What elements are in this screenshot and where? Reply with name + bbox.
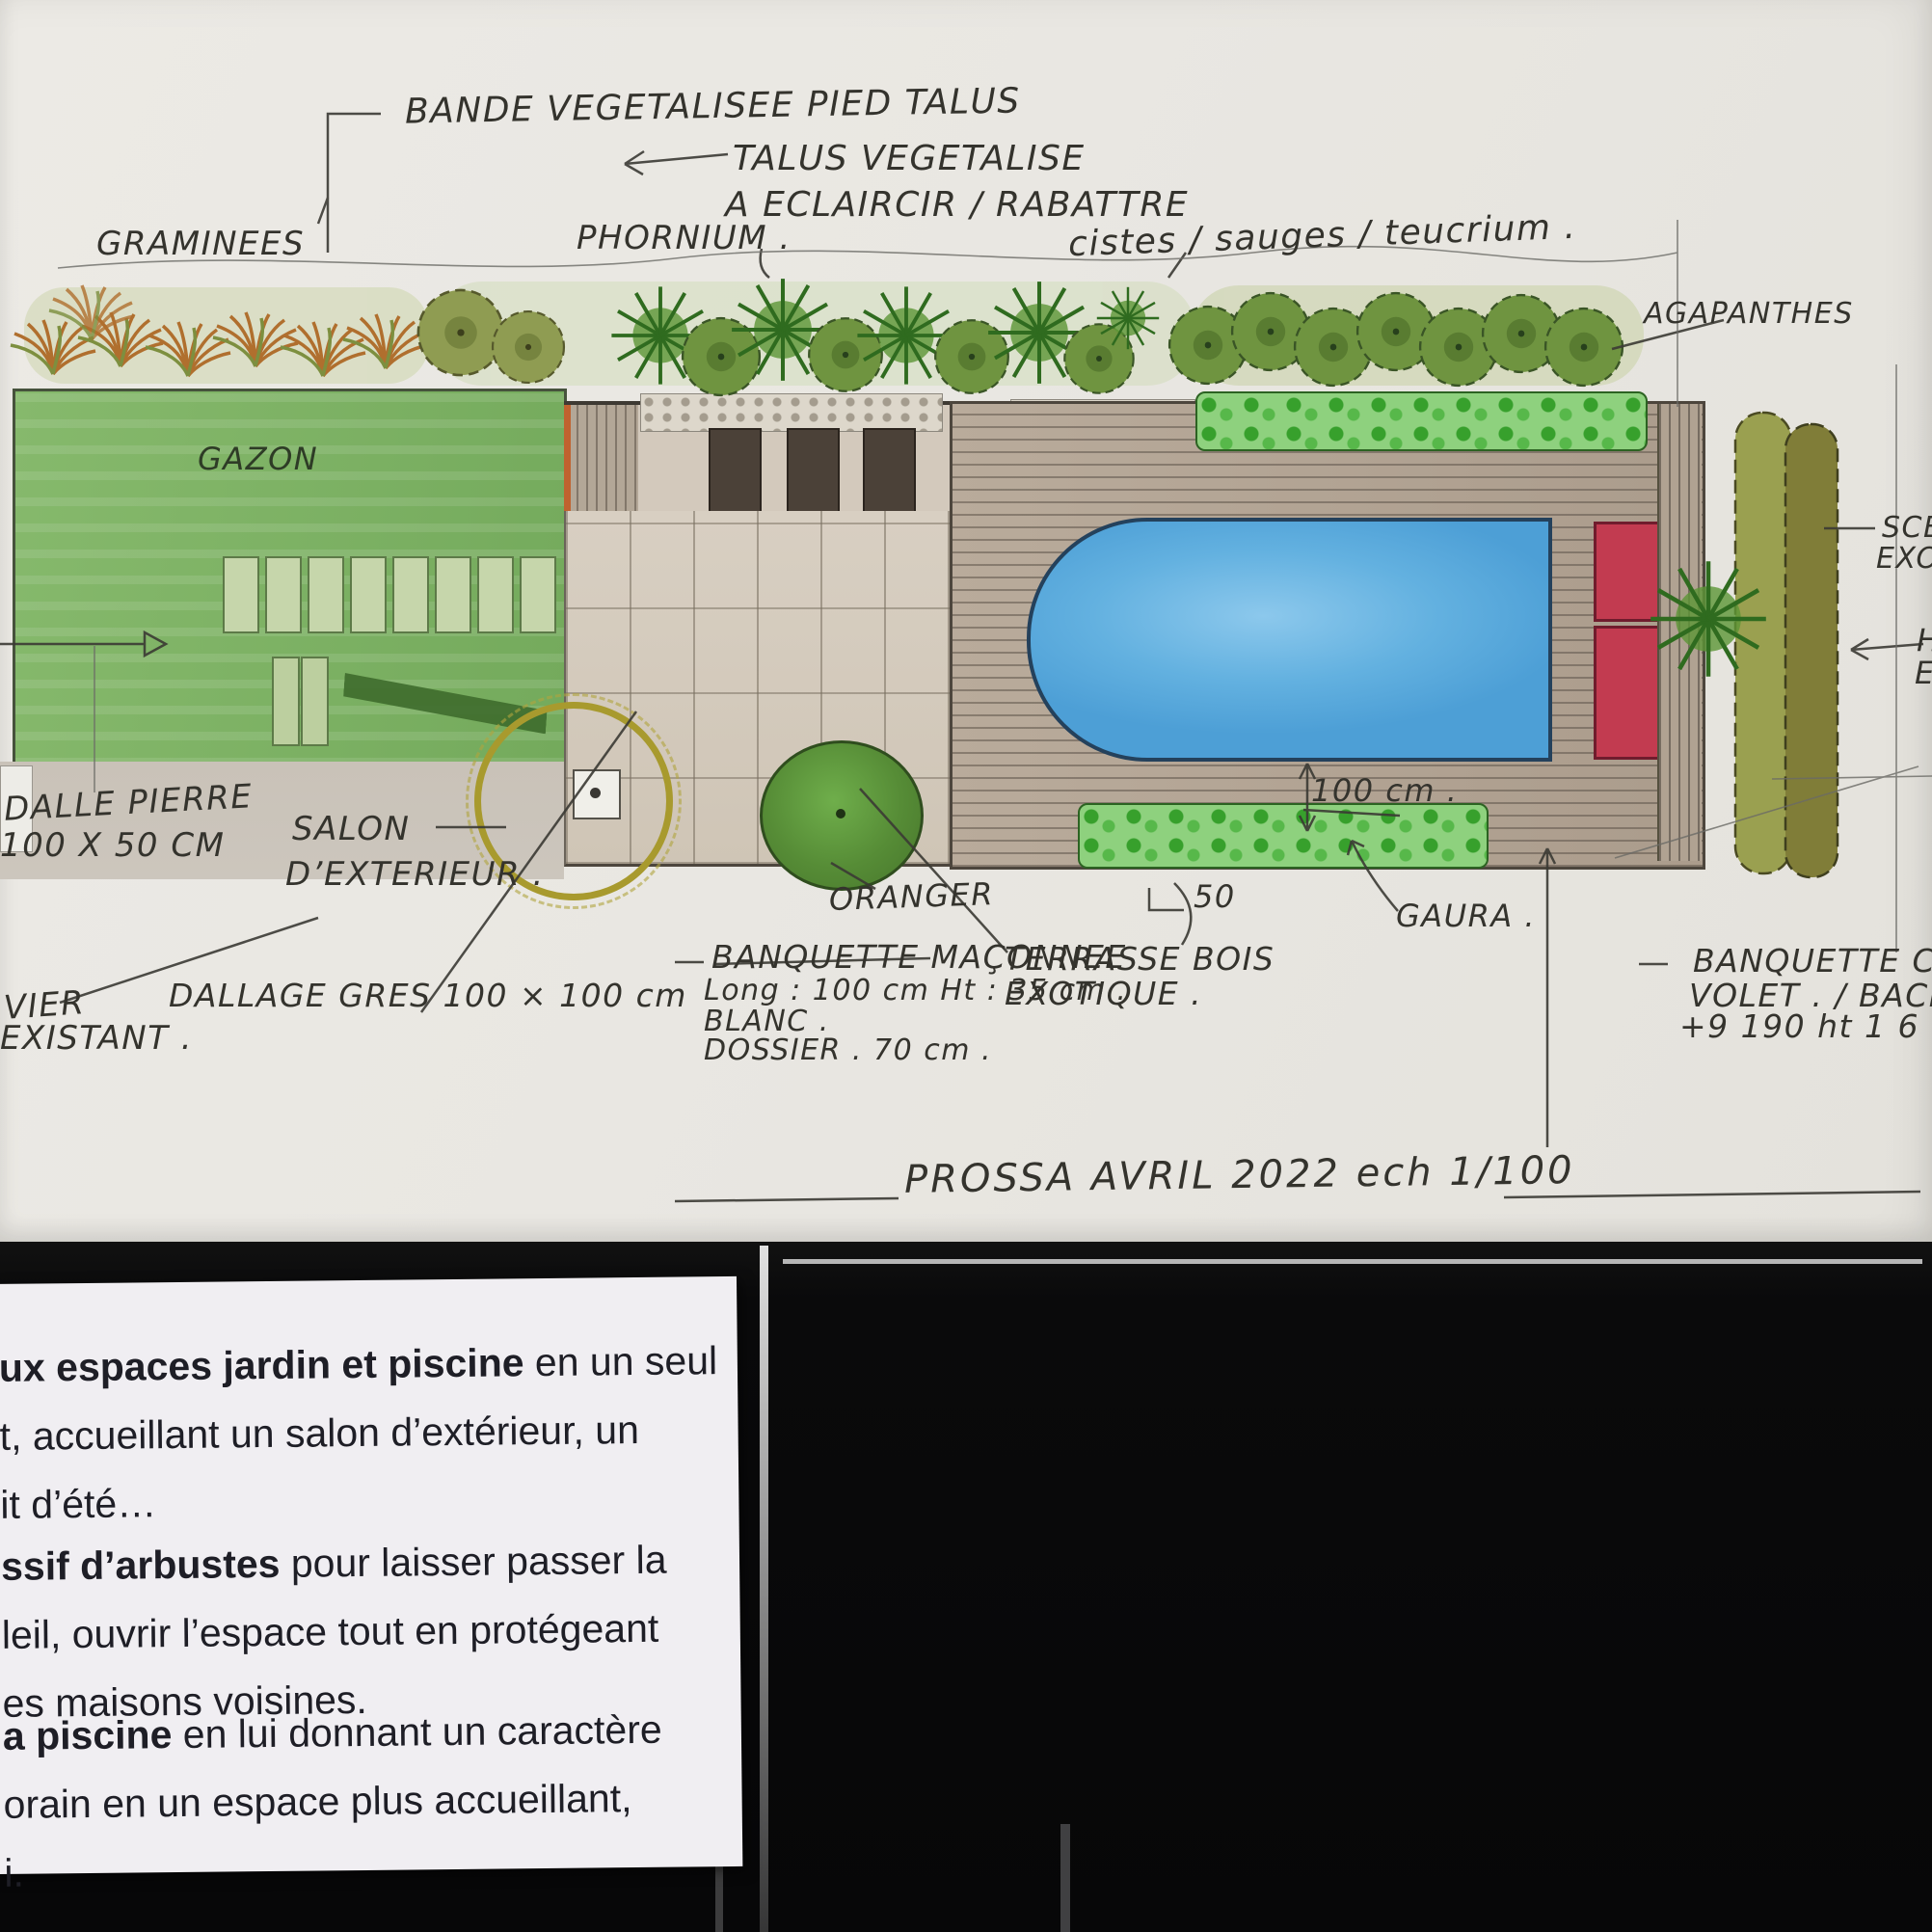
caption-line: orain en un espace plus accueillant, xyxy=(3,1763,737,1839)
deck-edge-boards xyxy=(1657,404,1702,861)
lawn-slab xyxy=(392,556,429,633)
gaura-hedge xyxy=(1078,803,1489,869)
lawn-slab xyxy=(350,556,387,633)
deck-top-shrubs xyxy=(1195,391,1648,451)
lawn-slab xyxy=(520,556,556,633)
label-dimension-100cm: 100 cm . xyxy=(1311,775,1458,808)
red-deck-element xyxy=(1594,626,1663,760)
label-banquette-coffre: BANQUETTE COF xyxy=(1693,945,1932,979)
label-scene: SCEN xyxy=(1882,513,1932,544)
plan-title: PROSSA AVRIL 2022 ech 1/100 xyxy=(904,1150,1575,1200)
label-olivier-existant: EXISTANT . xyxy=(0,1022,193,1057)
caption-line: ux espaces jardin et piscine en un seul xyxy=(0,1327,732,1403)
table-edge-highlight xyxy=(783,1259,1922,1264)
lawn-slab xyxy=(477,556,514,633)
lawn-slab xyxy=(272,657,300,746)
lawn-slab xyxy=(223,556,259,633)
caption-line: leil, ouvrir l’espace tout en protégeant xyxy=(1,1594,735,1670)
garden-plan-photo: BANDE VEGETALISEE PIED TALUS TALUS VEGET… xyxy=(0,0,1932,1932)
orange-tree xyxy=(760,740,924,891)
red-deck-element xyxy=(1594,522,1663,622)
outdoor-table xyxy=(573,769,621,819)
label-banquette-blanc: BLANC . xyxy=(704,1006,830,1037)
label-terrasse-exotique: EXOTIQUE . xyxy=(1005,978,1202,1011)
faint-vertical-line xyxy=(1060,1824,1070,1932)
label-salon-exterieur: D’EXTERIEUR . xyxy=(285,858,545,893)
lounger xyxy=(787,428,840,513)
caption-line: i. xyxy=(4,1832,738,1908)
label-salon: SALON xyxy=(292,813,410,847)
lawn-slab xyxy=(301,657,329,746)
orange-edge-strip xyxy=(564,405,571,511)
label-oranger: ORANGER xyxy=(828,878,994,917)
label-talus-vegetalise: TALUS VEGETALISE xyxy=(733,141,1086,177)
lounger xyxy=(863,428,916,513)
lounger xyxy=(709,428,762,513)
caption-paragraph-jardin-piscine: ux espaces jardin et piscine en un seult… xyxy=(0,1327,734,1540)
label-phormium: PHORNIUM . xyxy=(577,222,792,256)
label-dalle-pierre-dim: 100 X 50 CM xyxy=(0,829,225,864)
label-gazon: GAZON xyxy=(198,443,318,476)
vertical-edge-highlight xyxy=(760,1246,768,1932)
lawn-slab xyxy=(435,556,471,633)
swimming-pool xyxy=(1027,518,1552,762)
label-dimension-50: 50 xyxy=(1194,881,1236,914)
label-scene-exotique: EXO xyxy=(1876,544,1932,575)
wood-boards-strip xyxy=(567,405,638,511)
label-haie-1: H xyxy=(1917,625,1932,657)
pebble-strip xyxy=(640,393,943,432)
caption-line: ssif d’arbustes pour laisser passer la xyxy=(1,1525,735,1601)
label-dallage-gres: DALLAGE GRES 100 × 100 cm xyxy=(169,979,687,1013)
caption-card: ux espaces jardin et piscine en un seult… xyxy=(0,1276,742,1874)
label-banquette-hauteur: +9 190 ht 1 6 xyxy=(1679,1010,1919,1044)
label-talus-eclaircir: A ECLAIRCIR / RABATTRE xyxy=(725,187,1189,224)
label-haie-2: E xyxy=(1915,657,1932,690)
caption-line: t, accueillant un salon d’extérieur, un xyxy=(0,1395,733,1471)
lawn-slab xyxy=(308,556,344,633)
lawn-slab xyxy=(265,556,302,633)
caption-paragraph-piscine: a piscine en lui donnant un caractèreora… xyxy=(3,1695,738,1908)
label-banquette-dossier: DOSSIER . 70 cm . xyxy=(704,1035,992,1066)
label-gaura: GAURA . xyxy=(1396,900,1536,933)
label-agapanthes: AGAPANTHES xyxy=(1644,299,1854,330)
label-graminees: GRAMINEES xyxy=(96,228,305,262)
label-terrasse-bois: TERRASSE BOIS xyxy=(1005,943,1275,977)
caption-line: a piscine en lui donnant un caractère xyxy=(3,1695,737,1771)
